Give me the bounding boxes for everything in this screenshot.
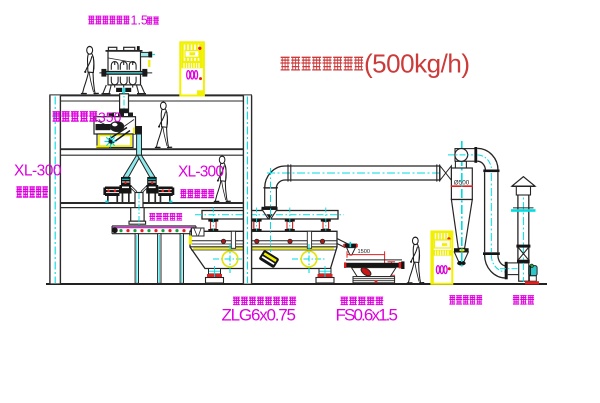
svg-text:(500kg/h): (500kg/h) bbox=[364, 49, 470, 79]
svg-text:ZLG6x0.75: ZLG6x0.75 bbox=[222, 306, 297, 325]
svg-text:350: 350 bbox=[98, 109, 122, 125]
svg-text:FS0.6x1.5: FS0.6x1.5 bbox=[336, 306, 399, 325]
svg-text:XL-300: XL-300 bbox=[14, 163, 62, 180]
svg-text:1500: 1500 bbox=[358, 249, 370, 255]
svg-text:XL-300: XL-300 bbox=[178, 164, 224, 181]
svg-text:1.5: 1.5 bbox=[131, 14, 148, 28]
